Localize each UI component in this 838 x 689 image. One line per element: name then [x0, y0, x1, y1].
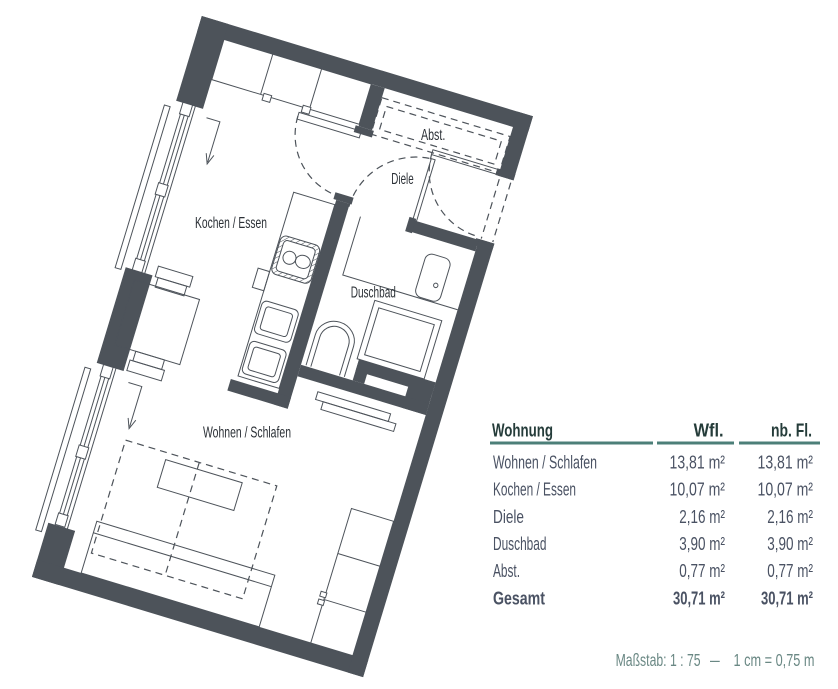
- svg-text:30,71 m²: 30,71 m²: [673, 588, 725, 609]
- svg-text:Duschbad: Duschbad: [493, 533, 547, 554]
- svg-text:30,71 m²: 30,71 m²: [761, 588, 813, 609]
- svg-text:10,07 m²: 10,07 m²: [670, 479, 726, 500]
- svg-text:Gesamt: Gesamt: [493, 588, 545, 609]
- svg-text:13,81 m²: 13,81 m²: [758, 452, 814, 473]
- svg-text:Wohnen / Schlafen: Wohnen / Schlafen: [203, 425, 291, 442]
- svg-text:10,07 m²: 10,07 m²: [758, 479, 814, 500]
- svg-text:Kochen / Essen: Kochen / Essen: [493, 479, 576, 500]
- svg-text:Wohnung: Wohnung: [492, 420, 553, 441]
- svg-text:3,90 m²: 3,90 m²: [679, 533, 725, 554]
- svg-text:1 cm = 0,75 m: 1 cm = 0,75 m: [734, 650, 815, 670]
- svg-text:nb. Fl.: nb. Fl.: [771, 420, 812, 441]
- svg-text:Abst.: Abst.: [493, 560, 520, 581]
- svg-text:2,16 m²: 2,16 m²: [679, 506, 725, 527]
- svg-text:Duschbad: Duschbad: [351, 284, 396, 301]
- svg-text:3,90 m²: 3,90 m²: [767, 533, 813, 554]
- svg-text:Abst.: Abst.: [421, 127, 445, 144]
- svg-text:Diele: Diele: [493, 506, 524, 527]
- svg-text:0,77 m²: 0,77 m²: [767, 560, 813, 581]
- svg-text:0,77 m²: 0,77 m²: [679, 560, 725, 581]
- svg-text:–: –: [710, 650, 720, 670]
- svg-text:Kochen / Essen: Kochen / Essen: [195, 215, 267, 232]
- svg-text:Maßstab: 1 : 75: Maßstab: 1 : 75: [616, 650, 701, 670]
- svg-text:Wfl.: Wfl.: [694, 420, 724, 441]
- svg-text:13,81 m²: 13,81 m²: [670, 452, 726, 473]
- svg-text:2,16 m²: 2,16 m²: [767, 506, 813, 527]
- svg-text:Wohnen / Schlafen: Wohnen / Schlafen: [493, 452, 597, 473]
- svg-text:Diele: Diele: [391, 171, 413, 188]
